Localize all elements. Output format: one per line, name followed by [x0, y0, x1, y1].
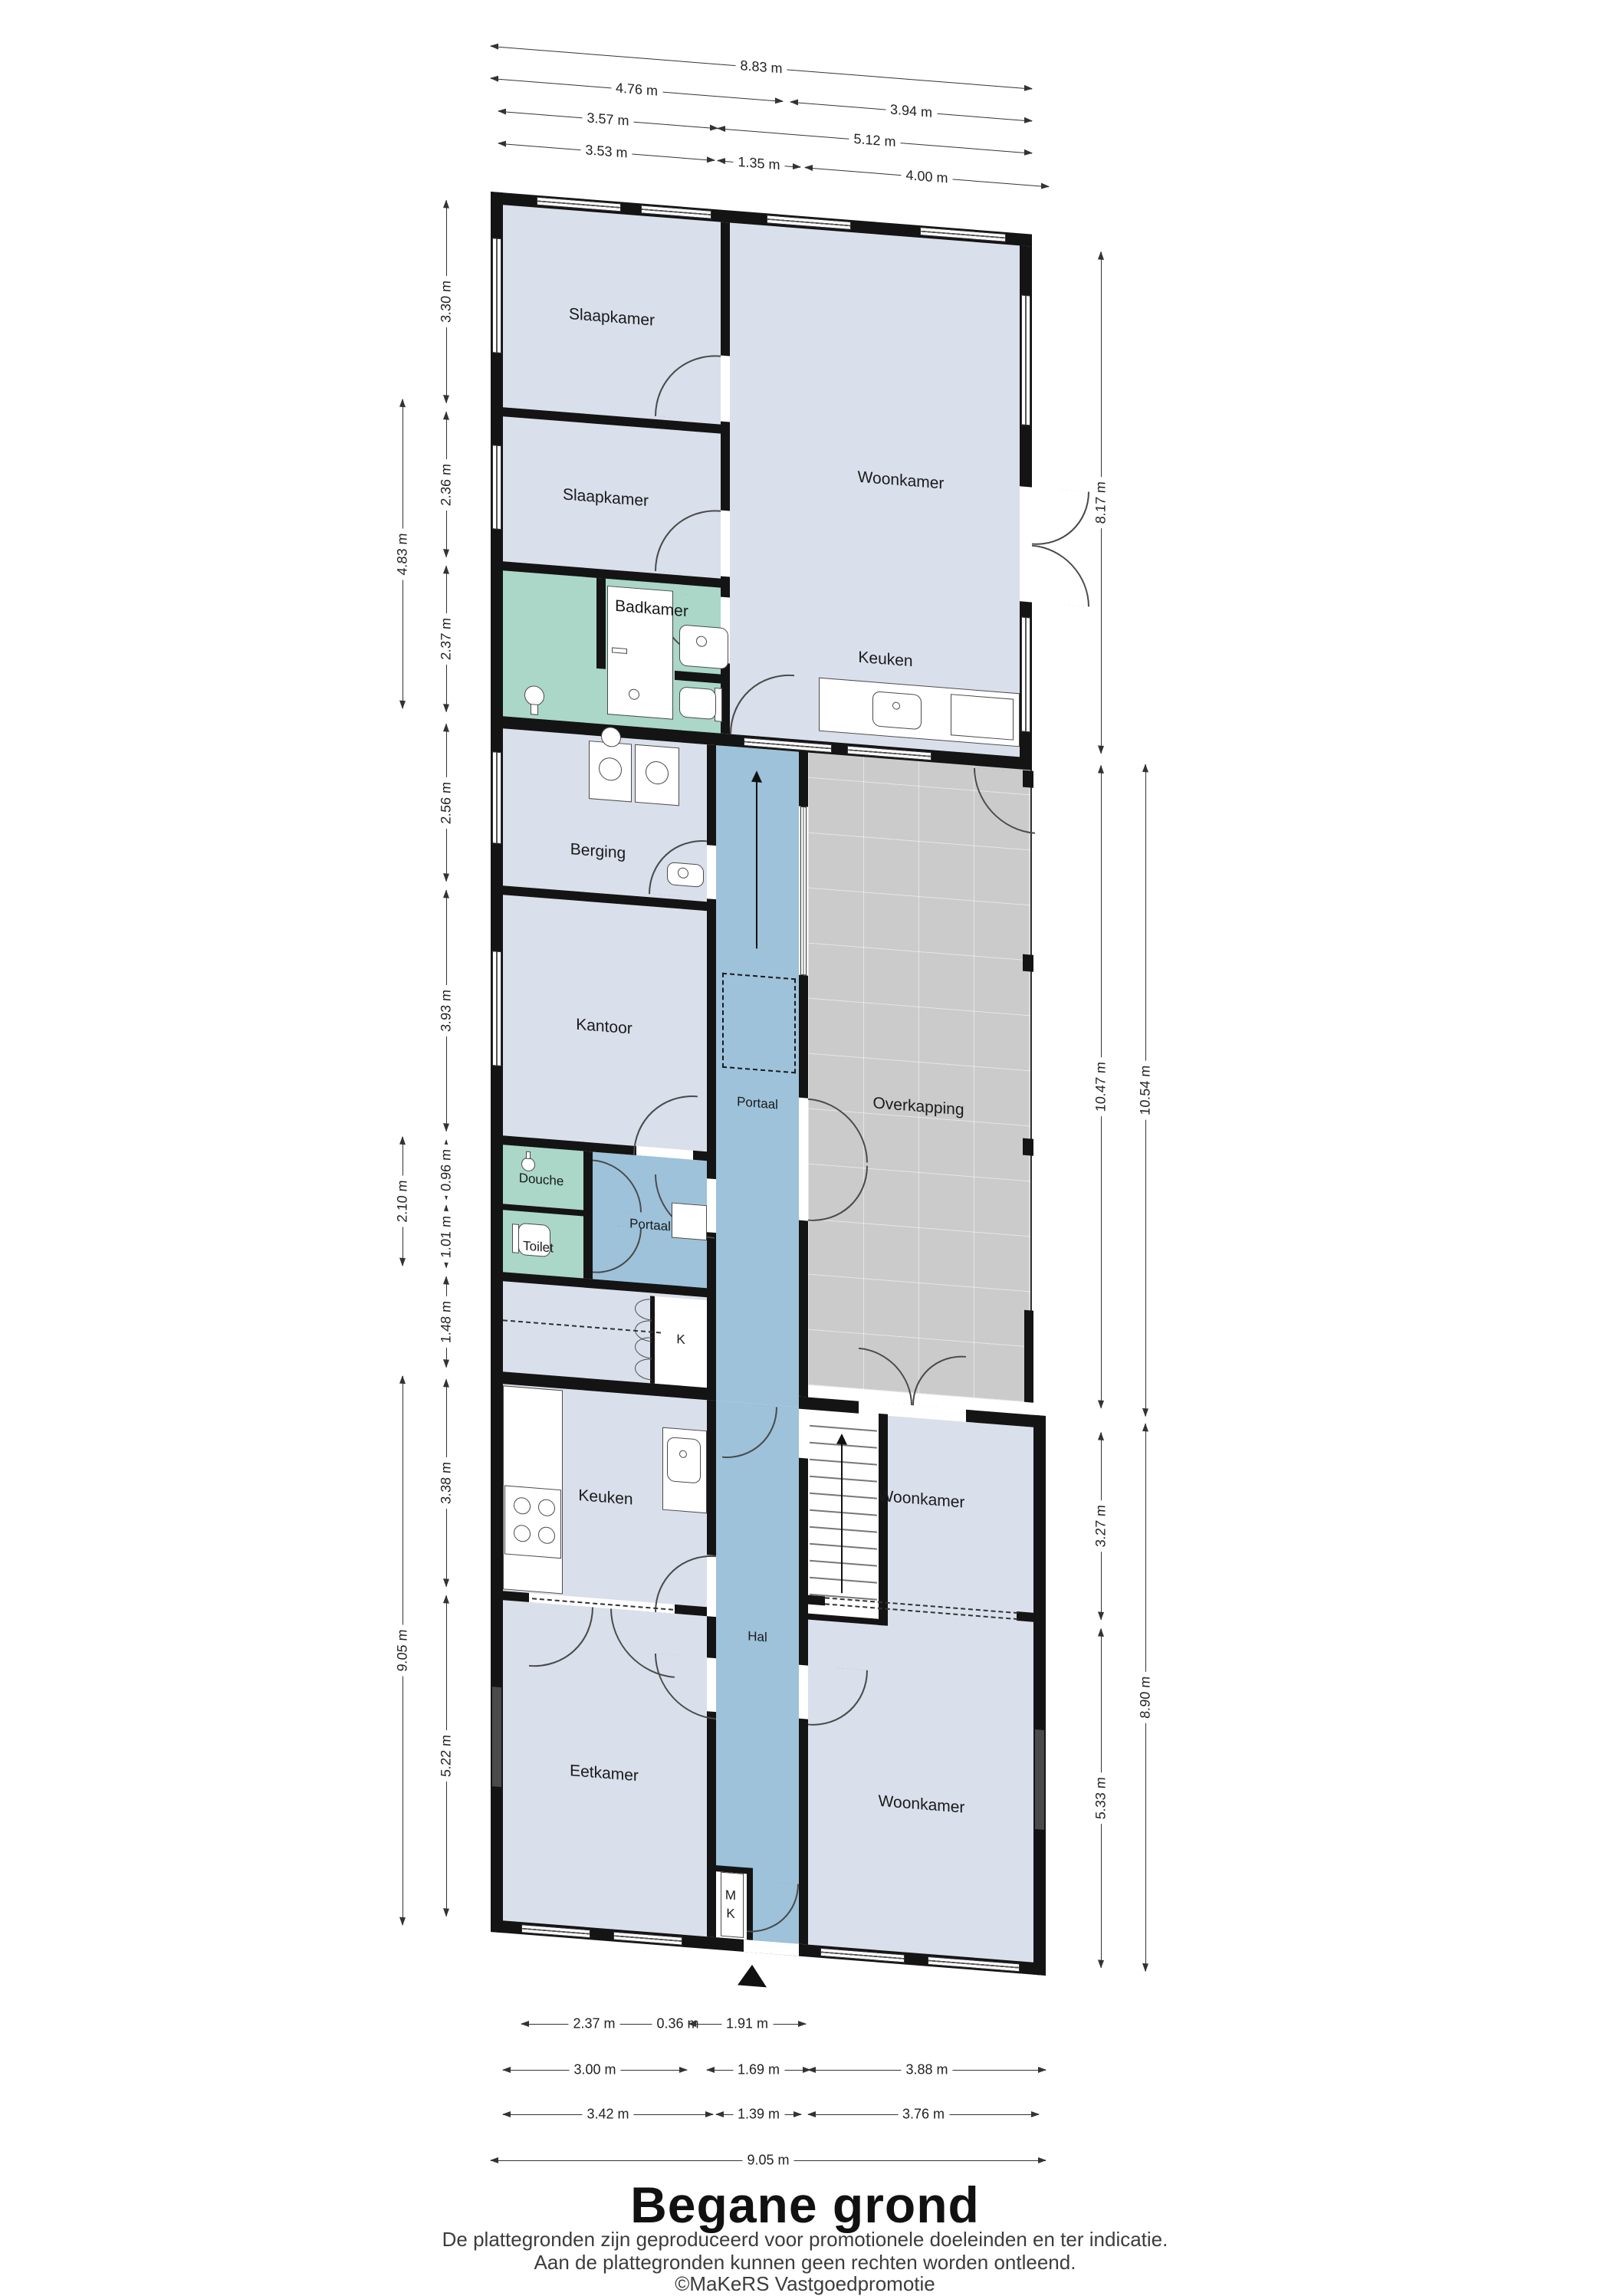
dimension-l13: 5.22 m: [439, 1595, 454, 1917]
wall-segment-9: [721, 422, 730, 511]
dimension-arrow-b-t7: [793, 163, 801, 170]
dimension-label-r1: 8.17 m: [1093, 476, 1109, 529]
dimension-label-r3: 3.27 m: [1093, 1499, 1109, 1552]
dimension-arrow-b-b10: [1038, 2157, 1046, 2163]
dimension-label-l4: 3.30 m: [439, 275, 455, 328]
wall-segment-14: [596, 578, 606, 669]
dimension-label-l5: 2.36 m: [439, 458, 455, 511]
dimension-b5: 1.69 m: [707, 2062, 810, 2078]
dimension-label-t8: 4.00 m: [901, 167, 952, 187]
dimension-label-l7: 2.56 m: [439, 777, 455, 829]
window-v-4: [1021, 294, 1030, 425]
dimension-label-l9: 0.96 m: [439, 1144, 455, 1197]
dimension-t5: 5.12 m: [718, 120, 1032, 160]
dimension-arrow-a-t8: [804, 164, 813, 171]
dimension-arrow-a-r2: [1098, 764, 1104, 774]
dimension-arrow-a-t2: [490, 75, 498, 82]
dimension-arrow-a-b3: [688, 2021, 696, 2027]
dimension-arrow-b-r4: [1098, 1959, 1104, 1969]
dimension-l5: 2.36 m: [439, 412, 454, 558]
fixture-washbasin-faucet-icon: [696, 636, 707, 647]
dimension-arrow-a-r4: [1098, 1628, 1104, 1637]
dimension-arrow-a-l2: [399, 1136, 406, 1145]
dimension-arrow-a-l8: [443, 889, 449, 898]
fixture-kitchen-faucet-back-icon: [892, 701, 900, 710]
window-dark-0: [492, 1687, 501, 1787]
room-area-portaal: [716, 745, 799, 1407]
wall-segment-39: [879, 1414, 888, 1626]
dimension-arrow-b-l7: [443, 873, 449, 882]
dimension-arrow-b-r6: [1142, 1963, 1148, 1972]
dimension-arrow-b-t6: [707, 156, 715, 163]
dimension-arrow-b-t1: [1024, 85, 1033, 92]
fixture-bath-handle-icon: [612, 647, 627, 654]
footer-disclaimer-1: De plattegronden zijn geproduceerd voor …: [0, 2228, 1610, 2252]
room-label-portaal2: Portaal: [629, 1216, 671, 1234]
fixture-portaal-cabinet-icon: [672, 1203, 707, 1241]
dimension-arrow-b-l8: [443, 1123, 449, 1132]
dimension-arrow-a-l7: [443, 723, 449, 732]
dimension-arrow-a-r1: [1098, 251, 1104, 260]
dimension-arrow-a-l12: [443, 1378, 449, 1388]
dimension-label-t2: 4.76 m: [611, 80, 662, 100]
room-area-overkapping: [808, 743, 1032, 1403]
floorplan-page: SlaapkamerSlaapkamerBadkamerWoonkamerKeu…: [0, 0, 1610, 2278]
dimension-label-l10: 1.01 m: [439, 1210, 455, 1263]
dimension-arrow-a-l5: [443, 411, 449, 420]
dimension-arrow-b-l6: [443, 704, 449, 713]
dimension-arrow-a-t3: [790, 99, 798, 106]
dimension-arrow-a-r5: [1142, 764, 1148, 773]
wall-segment-35: [503, 1591, 529, 1602]
fixture-kitchen-sink-front-icon: [667, 1437, 701, 1483]
wall-segment-25: [799, 742, 808, 807]
room-label-kast: K: [676, 1332, 685, 1348]
dimension-r5: 10.54 m: [1138, 764, 1153, 1417]
dimension-l11: 1.48 m: [439, 1276, 454, 1368]
dimension-label-l3: 9.05 m: [395, 1624, 411, 1677]
footer-disclaimer-2: Aan de plattegronden kunnen geen rechten…: [0, 2251, 1610, 2275]
dimension-label-b5: 1.69 m: [733, 2062, 784, 2078]
wall-segment-44: [1023, 954, 1033, 972]
room-label-meterkast_m: M: [725, 1887, 736, 1903]
dimension-b6: 3.88 m: [808, 2062, 1046, 2078]
dimension-arrow-a-b4: [502, 2067, 511, 2073]
fixture-washbasin-icon: [679, 624, 728, 669]
wall-segment-4: [1033, 1415, 1046, 1976]
dimension-arrow-b-l1: [399, 701, 406, 710]
page-title: Begane grond: [0, 2176, 1610, 2234]
dimension-arrow-a-l1: [399, 399, 406, 408]
dimension-arrow-a-b8: [715, 2111, 724, 2117]
dimension-arrow-b-t2: [775, 97, 784, 104]
room-label-toilet: Toilet: [523, 1238, 554, 1256]
dimension-label-r2: 10.47 m: [1093, 1056, 1109, 1117]
wall-segment-33: [799, 1719, 808, 1945]
dimension-l4: 3.30 m: [439, 200, 454, 404]
dimension-arrow-b-b7: [705, 2111, 714, 2117]
dimension-arrow-a-b6: [807, 2067, 816, 2073]
dimension-arrow-b-l4: [443, 395, 449, 404]
dimension-l1: 4.83 m: [395, 399, 410, 709]
wall-segment-27: [799, 1220, 808, 1398]
wall-segment-37: [808, 1595, 825, 1606]
dimension-arrow-a-b9: [807, 2111, 816, 2117]
footer-copyright: ©MaKeRS Vastgoedpromotie: [0, 2272, 1610, 2296]
dimension-arrow-b-b4: [679, 2067, 688, 2073]
dimension-arrow-a-t6: [498, 140, 506, 147]
dimension-arrow-a-b5: [706, 2067, 715, 2073]
dimension-label-r5: 10.54 m: [1138, 1060, 1154, 1121]
window-v-6: [800, 806, 807, 976]
dimension-label-l2: 2.10 m: [395, 1175, 411, 1228]
fixture-shower-arm-icon: [526, 1151, 531, 1159]
wall-segment-45: [1023, 1138, 1033, 1156]
dimension-t2: 4.76 m: [491, 71, 783, 109]
fixture-stove-icon: [504, 1485, 561, 1559]
fixture-toilet-bowl-bathroom-icon: [679, 686, 716, 720]
dimension-l9: 0.96 m: [439, 1140, 454, 1201]
dimension-arrow-a-t4: [498, 108, 506, 115]
fixture-kitchen-appliance-back-icon: [951, 694, 1014, 740]
fixture-meter-cupboard-box-icon: [721, 1872, 744, 1938]
window-v-0: [492, 238, 501, 353]
dimension-label-b4: 3.00 m: [569, 2062, 620, 2078]
bottom-dimensions: 2.37 m0.36 m1.91 m3.00 m1.69 m3.88 m3.42…: [491, 2024, 1046, 2193]
dimension-arrow-a-l13: [443, 1595, 449, 1604]
room-label-portaal: Portaal: [737, 1094, 778, 1112]
wall-segment-31: [707, 1711, 716, 1937]
wall-segment-30: [707, 1616, 716, 1658]
fixture-bath-drain-icon: [629, 688, 639, 700]
dimension-arrow-a-b7: [502, 2111, 511, 2117]
wall-segment-23: [707, 898, 716, 1179]
wall-segment-8: [721, 222, 730, 356]
entrance-arrow-icon: [738, 1963, 767, 1987]
dimension-label-l6: 2.37 m: [439, 613, 455, 665]
fixture-pedestal-sink-stem-icon: [531, 704, 538, 715]
dimension-arrow-a-b1: [521, 2021, 529, 2027]
dimension-arrow-a-r3: [1098, 1431, 1104, 1440]
dimension-r4: 5.33 m: [1093, 1628, 1109, 1969]
dimension-b10: 9.05 m: [491, 2153, 1046, 2168]
fixture-shower-head-icon: [521, 1157, 535, 1171]
room-label-meterkast_k: K: [726, 1906, 734, 1922]
wall-segment-22: [707, 744, 716, 846]
dimension-arrow-a-l4: [443, 199, 449, 209]
fixture-kitchen-faucet-front-icon: [679, 1450, 687, 1458]
dimension-l3: 9.05 m: [395, 1375, 410, 1926]
wall-segment-10: [721, 576, 730, 598]
skylight-dashed-outline: [722, 973, 796, 1074]
window-dark-1: [1035, 1729, 1044, 1830]
dimension-r6: 8.90 m: [1138, 1423, 1153, 1972]
dimension-arrow-b-b6: [1038, 2067, 1046, 2073]
dimension-b8: 1.39 m: [716, 2107, 801, 2122]
stairs-arrow-line: [841, 1443, 843, 1593]
room-label-hal: Hal: [747, 1628, 767, 1645]
dimension-arrow-b-r2: [1098, 1400, 1104, 1409]
corridor-arrow-line: [756, 781, 757, 948]
dimension-l7: 2.56 m: [439, 724, 454, 882]
dimension-arrow-b-l12: [443, 1578, 449, 1588]
dimension-label-l8: 3.93 m: [439, 984, 455, 1037]
dimension-arrow-a-t5: [717, 125, 725, 132]
dimension-arrow-b-b3: [798, 2021, 807, 2027]
room-area-hal: [716, 1401, 799, 1943]
dimension-arrow-a-l3: [399, 1375, 406, 1384]
dimension-l8: 3.93 m: [439, 890, 454, 1132]
dimension-label-b9: 3.76 m: [898, 2107, 949, 2123]
dimension-arrow-b-l3: [399, 1917, 406, 1926]
dimension-l2: 2.10 m: [395, 1136, 410, 1266]
dimension-t6: 3.53 m: [498, 136, 715, 168]
dimension-arrow-a-b10: [490, 2157, 498, 2163]
stairs-arrow-head: [836, 1433, 847, 1444]
dimension-l6: 2.37 m: [439, 566, 454, 713]
dimension-arrow-b-t3: [1024, 117, 1033, 124]
dimension-arrow-b-l11: [443, 1359, 449, 1368]
dimension-t7: 1.35 m: [718, 153, 800, 174]
wall-segment-32: [799, 1458, 808, 1666]
window-v-1: [492, 445, 501, 530]
dimension-label-b1: 2.37 m: [568, 2016, 619, 2032]
wall-segment-29: [707, 1400, 716, 1555]
dimension-r1: 8.17 m: [1093, 251, 1109, 754]
dimension-label-t1: 8.83 m: [735, 57, 787, 77]
dimension-b3: 1.91 m: [688, 2016, 806, 2032]
dimension-label-b7: 3.42 m: [582, 2107, 633, 2123]
dimension-label-l11: 1.48 m: [439, 1296, 455, 1348]
dimension-b2: 0.36 m: [667, 2016, 688, 2032]
dimension-arrow-a-l6: [443, 565, 449, 574]
dimension-label-t6: 3.53 m: [580, 142, 632, 162]
dimension-arrow-b-r5: [1142, 1408, 1148, 1417]
dimension-b4: 3.00 m: [503, 2062, 687, 2078]
dimension-label-t5: 5.12 m: [849, 130, 900, 150]
wall-segment-24: [707, 1232, 716, 1401]
dimension-label-b3: 1.91 m: [721, 2016, 773, 2032]
floorplan-drawing: SlaapkamerSlaapkamerBadkamerWoonkamerKeu…: [491, 192, 1046, 1991]
dimension-b9: 3.76 m: [808, 2107, 1039, 2122]
dimension-arrow-b-l13: [443, 1908, 449, 1917]
dimension-arrow-b-t8: [1041, 183, 1050, 190]
dimension-l10: 1.01 m: [439, 1205, 454, 1269]
dimension-label-l13: 5.22 m: [439, 1729, 455, 1782]
dimension-l12: 3.38 m: [439, 1379, 454, 1588]
dimension-arrow-a-l11: [443, 1276, 449, 1285]
door-swing-13: [1032, 488, 1089, 550]
dimension-label-b8: 1.39 m: [733, 2107, 784, 2123]
window-v-5: [1021, 616, 1030, 732]
wall-segment-38: [1017, 1611, 1033, 1622]
dimension-b7: 3.42 m: [503, 2107, 713, 2122]
dimension-label-l12: 3.38 m: [439, 1457, 455, 1509]
dimension-label-b10: 9.05 m: [742, 2153, 793, 2169]
dimension-arrow-b-b9: [1031, 2111, 1040, 2117]
dimension-label-r6: 8.90 m: [1138, 1671, 1154, 1724]
dimension-r3: 3.27 m: [1093, 1432, 1109, 1621]
dimension-arrow-b-l5: [443, 549, 449, 558]
dimension-label-l1: 4.83 m: [395, 527, 411, 580]
window-v-3: [492, 951, 501, 1066]
dimension-t8: 4.00 m: [805, 159, 1049, 194]
door-swing-14: [1032, 545, 1089, 607]
dimension-b1: 2.37 m: [521, 2016, 667, 2032]
dimension-label-t7: 1.35 m: [733, 153, 784, 173]
fixture-kitchen-sink-back-icon: [872, 691, 922, 730]
dimension-arrow-b-r3: [1098, 1611, 1104, 1621]
dimension-arrow-a-r6: [1142, 1423, 1148, 1432]
dimension-arrow-b-r1: [1098, 745, 1104, 754]
dimension-r2: 10.47 m: [1093, 765, 1109, 1409]
dimension-label-t3: 3.94 m: [886, 101, 937, 121]
corridor-arrow-head: [751, 770, 762, 783]
dimension-arrow-a-t7: [717, 157, 725, 164]
wall-segment-46: [1024, 1310, 1033, 1403]
dimension-t4: 3.57 m: [498, 103, 718, 136]
dimension-arrow-b-t5: [1024, 149, 1033, 156]
dimension-arrow-a-t1: [490, 43, 498, 50]
dimension-arrow-b-b8: [793, 2111, 802, 2117]
dimension-t3: 3.94 m: [790, 94, 1032, 129]
wall-segment-26: [799, 975, 808, 1099]
dimension-label-t4: 3.57 m: [582, 110, 633, 130]
window-v-2: [492, 751, 501, 844]
dimension-label-b6: 3.88 m: [901, 2062, 952, 2078]
fixture-utility-sink-drain-icon: [678, 867, 688, 879]
canopy-edge-line: [1030, 760, 1032, 1402]
dimension-arrow-b-l2: [399, 1258, 406, 1267]
wall-segment-19: [583, 1151, 593, 1279]
door-opening-0: [1020, 486, 1032, 602]
dimension-label-r4: 5.33 m: [1093, 1772, 1109, 1825]
